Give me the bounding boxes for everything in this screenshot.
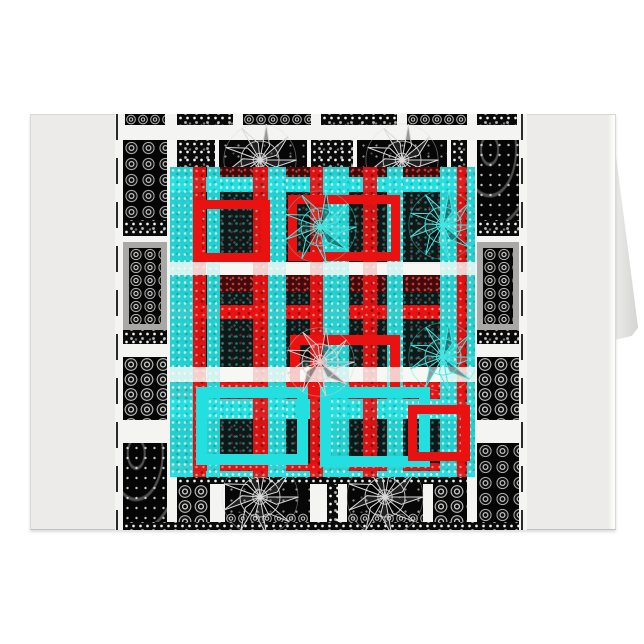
pattern-block-grayframe [477, 242, 519, 330]
plaid-white-gutter [170, 262, 475, 275]
pattern-block-circles [177, 484, 210, 522]
pattern-block-circles-sm [243, 114, 311, 125]
plaid-square-frame-red [408, 405, 470, 461]
pattern-block-speckle [327, 484, 338, 522]
pattern-block-speckle [477, 114, 517, 125]
pattern-block-speckle [477, 220, 519, 236]
pattern-block-grayframe [123, 242, 167, 330]
pattern-block-circles [433, 484, 467, 522]
plaid-overlay [170, 167, 475, 477]
pattern-block-speckle [123, 220, 167, 236]
pattern-block-speckle [123, 330, 167, 344]
dashed-edge-line [116, 114, 118, 530]
card-front-design [115, 114, 527, 530]
card-fold-highlight [608, 115, 615, 529]
pattern-block-speckle [321, 114, 397, 125]
pattern-block-circles [477, 357, 519, 420]
pattern-block-speckle [177, 114, 233, 125]
pattern-block-ornate [477, 443, 519, 530]
pattern-block-circles-sm [407, 114, 467, 125]
pattern-block-circles-sm [125, 114, 165, 125]
card-back-panel-edge [612, 136, 640, 342]
plaid-square-frame-red [288, 195, 400, 261]
pattern-block-ornate [123, 140, 167, 220]
pattern-block-paisley [477, 140, 519, 220]
plaid-square-frame-cyan [196, 387, 308, 465]
plaid-square-frame-red [193, 200, 270, 262]
product-photo-stage [0, 0, 644, 644]
pattern-block-circles-sm [225, 513, 310, 522]
pattern-block-circles [123, 357, 167, 420]
pattern-block-speckle [177, 477, 467, 484]
pattern-block-paisley [123, 443, 167, 530]
plaid-v-band-cyan [170, 167, 193, 477]
pattern-block-speckle [477, 330, 519, 344]
pattern-block-circles-sm [347, 513, 423, 522]
plaid-white-gutter [170, 367, 475, 382]
pattern-block-speckle [123, 522, 519, 530]
dashed-edge-line [521, 114, 523, 530]
